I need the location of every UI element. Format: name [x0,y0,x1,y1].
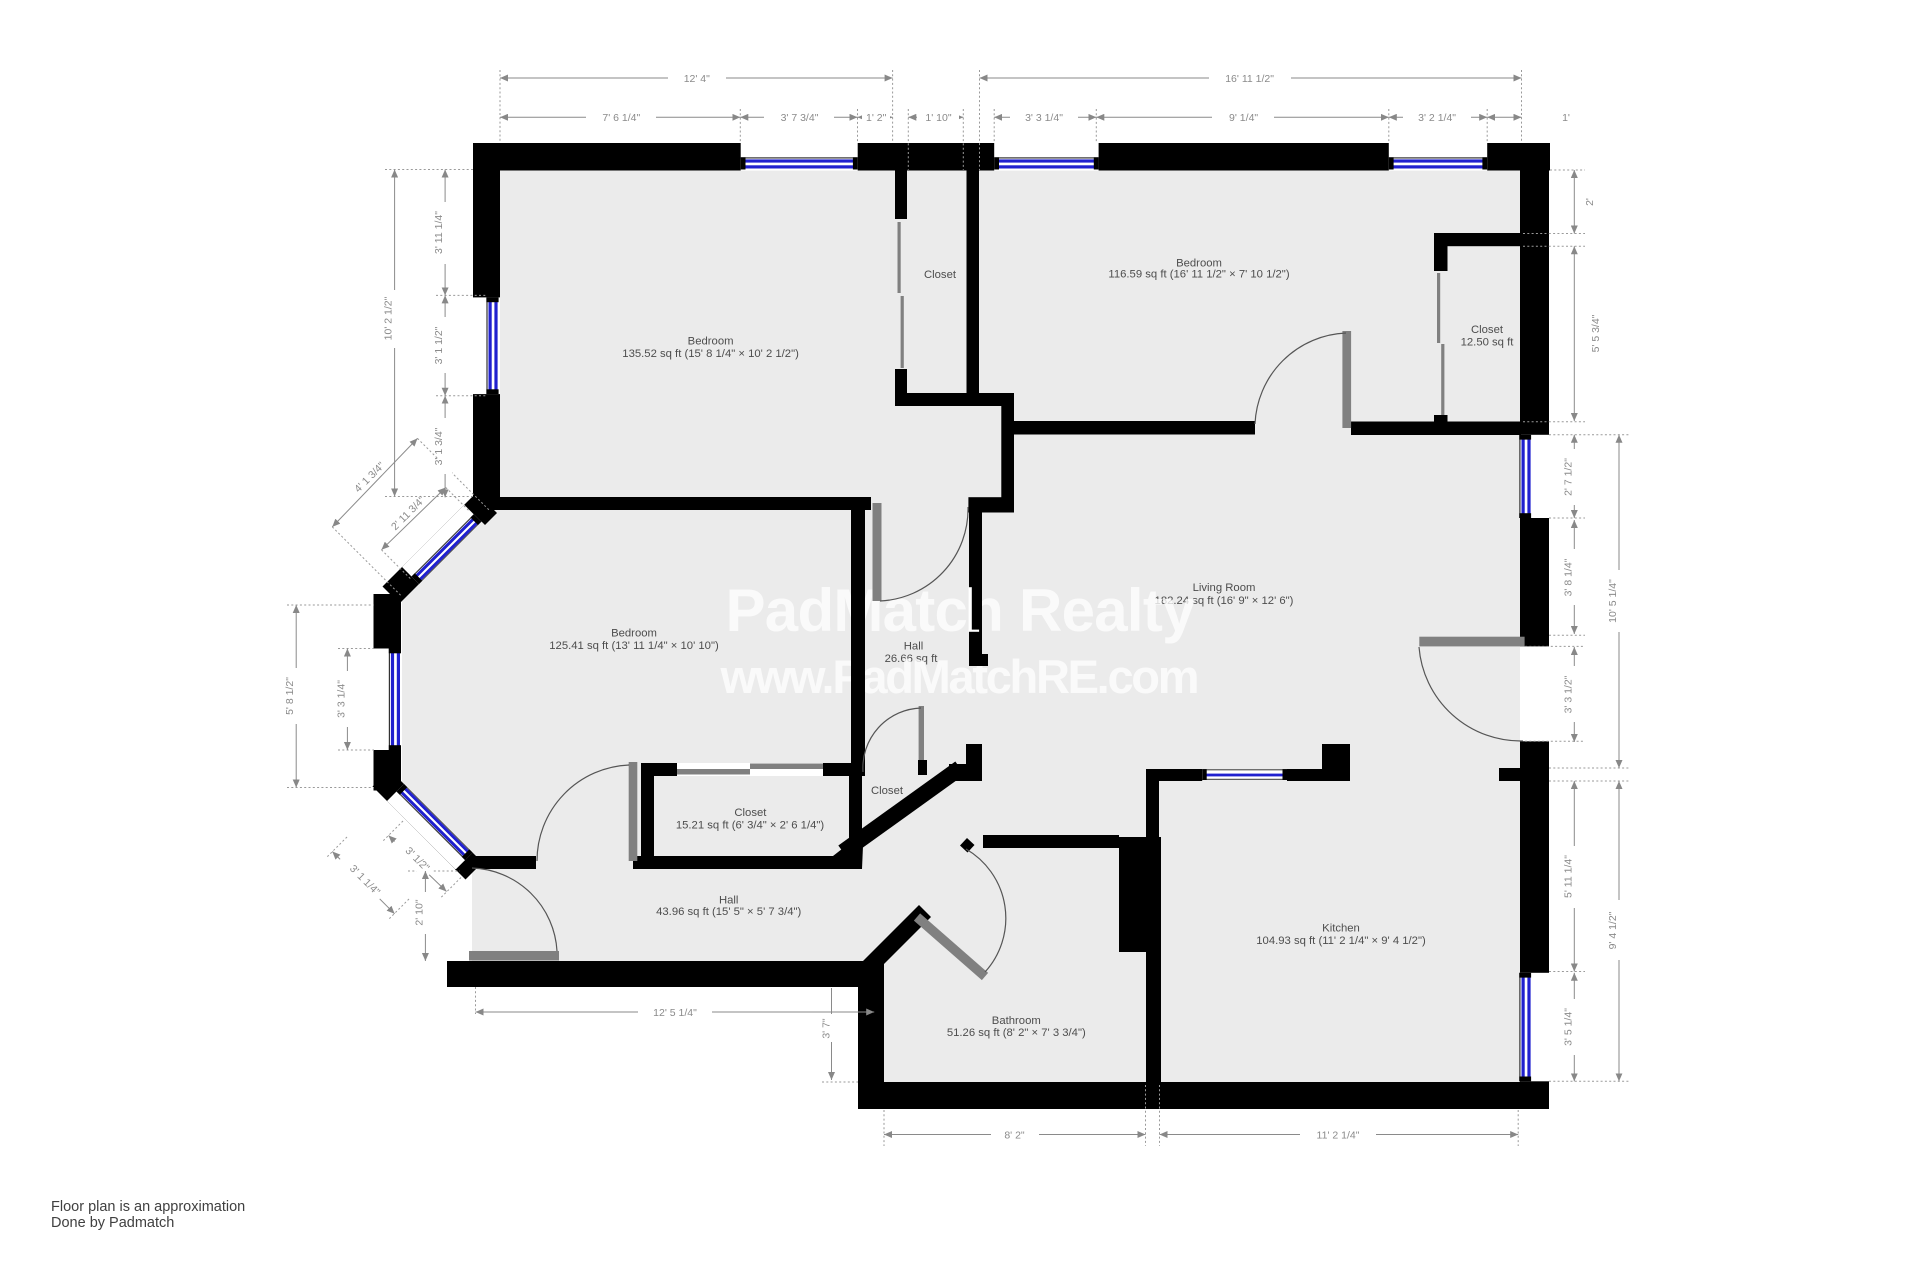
svg-text:135.52 sq ft (15' 8 1/4" × 10': 135.52 sq ft (15' 8 1/4" × 10' 2 1/2") [622,348,799,360]
svg-text:11' 2 1/4": 11' 2 1/4" [1317,1129,1360,1141]
svg-text:1' 2": 1' 2" [866,112,887,124]
svg-text:3' 2 1/4": 3' 2 1/4" [1418,112,1456,124]
svg-text:Closet: Closet [1471,324,1504,336]
svg-text:5' 5 3/4": 5' 5 3/4" [1590,314,1602,352]
svg-text:5' 8 1/2": 5' 8 1/2" [284,677,296,715]
svg-text:43.96 sq ft (15' 5" × 5' 7 3/4: 43.96 sq ft (15' 5" × 5' 7 3/4") [656,906,801,918]
svg-text:3' 3 1/2": 3' 3 1/2" [1562,675,1574,713]
svg-text:104.93 sq ft (11' 2 1/4" × 9': 104.93 sq ft (11' 2 1/4" × 9' 4 1/2") [1256,935,1426,947]
svg-text:8' 2": 8' 2" [1004,1129,1025,1141]
svg-text:Kitchen: Kitchen [1322,923,1360,935]
svg-text:12' 5 1/4": 12' 5 1/4" [653,1007,697,1019]
svg-text:www.PadMatchRE.com: www.PadMatchRE.com [720,650,1200,703]
svg-text:Bathroom: Bathroom [992,1015,1041,1027]
svg-text:15.21 sq ft (6' 3/4" × 2' 6 1/: 15.21 sq ft (6' 3/4" × 2' 6 1/4") [676,820,825,832]
svg-text:Closet: Closet [871,785,904,797]
svg-text:9' 1/4": 9' 1/4" [1229,112,1258,124]
svg-text:Done by Padmatch: Done by Padmatch [51,1215,174,1231]
svg-text:3' 11 1/4": 3' 11 1/4" [433,211,445,254]
svg-text:3' 3 1/4": 3' 3 1/4" [335,680,347,718]
svg-text:1' 10": 1' 10" [925,112,951,124]
svg-text:2': 2' [1584,198,1596,206]
svg-text:3' 1 1/2": 3' 1 1/2" [433,326,445,364]
svg-text:10' 5 1/4": 10' 5 1/4" [1607,579,1619,623]
svg-text:1': 1' [1562,112,1570,124]
svg-text:5' 11 1/4": 5' 11 1/4" [1562,855,1574,898]
svg-text:10' 2 1/2": 10' 2 1/2" [383,296,395,340]
svg-text:Hall: Hall [719,895,738,907]
svg-text:3' 7": 3' 7" [821,1018,833,1039]
svg-text:12' 4": 12' 4" [684,73,710,85]
svg-text:PadMatch Realty: PadMatch Realty [726,577,1197,644]
svg-text:2' 7 1/2": 2' 7 1/2" [1562,458,1574,496]
svg-text:Living Room: Living Room [1193,582,1256,594]
svg-text:3' 5 1/4": 3' 5 1/4" [1562,1008,1574,1046]
svg-text:116.59 sq ft (16' 11 1/2" × 7': 116.59 sq ft (16' 11 1/2" × 7' 10 1/2") [1108,269,1289,281]
svg-text:Floor plan is an approximation: Floor plan is an approximation [51,1199,245,1215]
svg-text:51.26 sq ft (8' 2" × 7' 3 3/4": 51.26 sq ft (8' 2" × 7' 3 3/4") [947,1027,1086,1039]
svg-text:9' 4 1/2": 9' 4 1/2" [1607,911,1619,949]
svg-text:Closet: Closet [924,269,957,281]
svg-text:3' 1 3/4": 3' 1 3/4" [433,427,445,465]
svg-text:3' 3 1/4": 3' 3 1/4" [1025,112,1063,124]
svg-text:12.50 sq ft: 12.50 sq ft [1461,337,1515,349]
svg-text:3' 8 1/4": 3' 8 1/4" [1562,558,1574,596]
svg-text:16' 11 1/2": 16' 11 1/2" [1225,73,1274,85]
svg-text:7' 6 1/4": 7' 6 1/4" [602,112,640,124]
svg-text:Bedroom: Bedroom [688,336,734,348]
svg-text:3' 7 3/4": 3' 7 3/4" [781,112,819,124]
svg-text:2' 10": 2' 10" [413,899,425,925]
svg-text:Closet: Closet [734,807,767,819]
svg-text:125.41 sq ft (13' 11 1/4" × 10: 125.41 sq ft (13' 11 1/4" × 10' 10") [549,640,719,652]
svg-text:Bedroom: Bedroom [611,628,657,640]
